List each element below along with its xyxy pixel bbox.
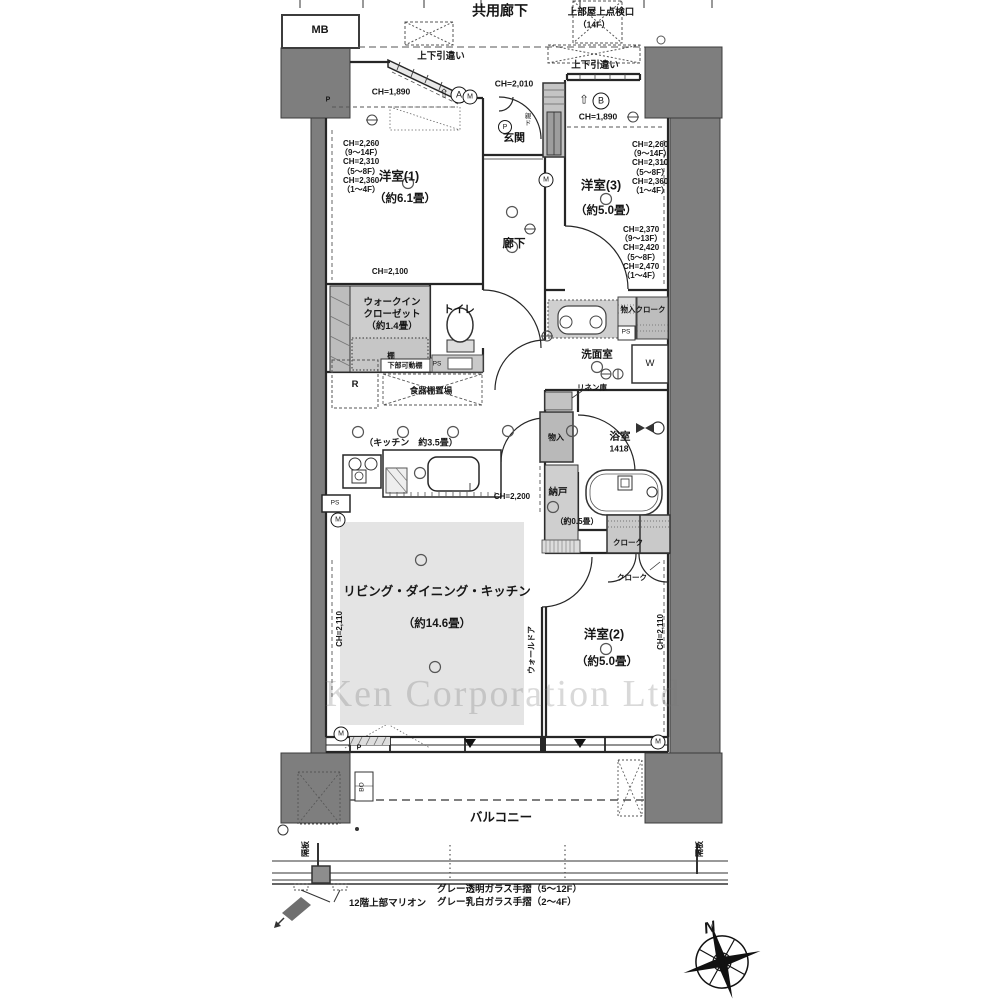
storage-cloak-boxes — [618, 297, 668, 340]
ldk-floor-shade — [340, 522, 524, 725]
bathtub — [586, 470, 662, 515]
linen-shelf — [545, 391, 582, 410]
floorplan-drawing — [0, 0, 1000, 1000]
mb-box — [282, 15, 359, 48]
compass-rose — [673, 913, 771, 1000]
kitchen-counter — [343, 450, 501, 497]
bottom-window-band — [326, 737, 668, 752]
entrance-door-arcs — [499, 97, 541, 139]
floorplan-canvas: 共用廊下上部屋上点検口（14F）MB上下引違い上下引違いCH=1,890⇧ACH… — [0, 0, 1000, 1000]
slanted-window — [388, 60, 462, 104]
hall-storage-box — [540, 412, 573, 462]
shoe-cabinet — [543, 83, 565, 157]
bo-box — [355, 772, 373, 801]
balcony-circle-left — [278, 825, 288, 835]
railing-lines — [272, 843, 728, 884]
top-ticks — [300, 0, 712, 8]
common-corridor-lines — [358, 1, 665, 63]
ps-box-kitchen — [322, 495, 350, 512]
toilet-fixture — [432, 308, 483, 372]
nando-shelf-strip — [542, 540, 580, 553]
vanity-counter — [548, 300, 620, 338]
cloak-boxes — [607, 515, 670, 570]
washer-outlets — [601, 369, 623, 379]
walk-in-closet — [330, 286, 445, 372]
washer-box — [632, 345, 668, 383]
cupboard-space — [383, 374, 482, 405]
downspout-detail — [274, 897, 311, 928]
shower-icon — [636, 422, 664, 434]
balcony-dot — [355, 827, 359, 831]
